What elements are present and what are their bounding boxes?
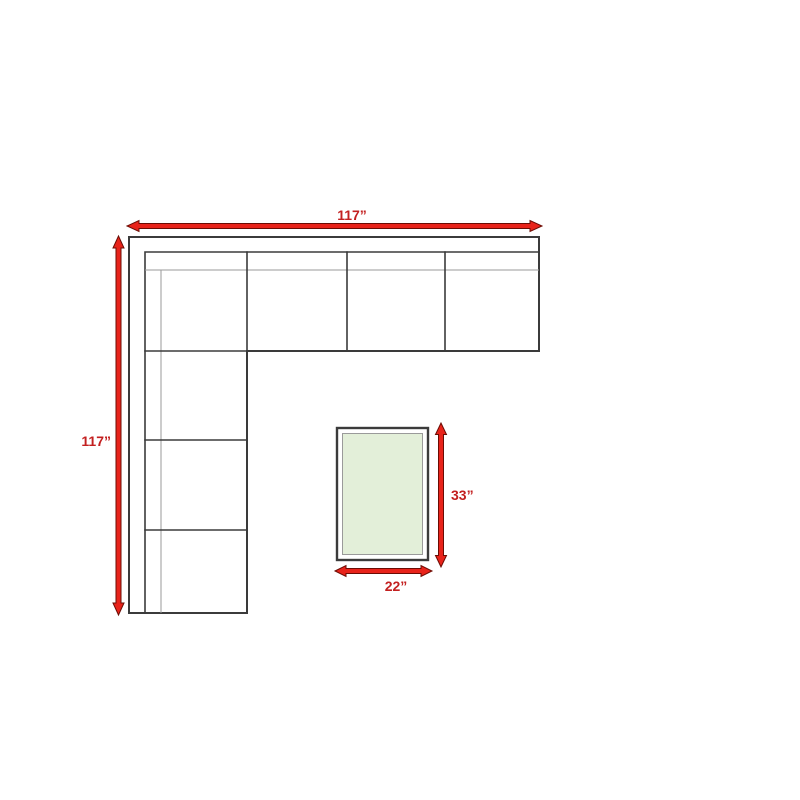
table-width-arrow [335, 566, 432, 577]
diagram-canvas: 117” 117” 33” 22” [0, 0, 800, 800]
sofa-width-arrow [127, 221, 542, 232]
sofa-depth-label: 117” [81, 433, 111, 449]
table-length-label: 33” [451, 487, 474, 503]
sectional-sofa [129, 237, 539, 613]
dimension-diagram: 117” 117” 33” 22” [0, 0, 800, 800]
sofa-depth-arrow [113, 236, 124, 615]
table-top-surface [343, 434, 423, 555]
sofa-outer-shell [129, 237, 539, 613]
end-table [337, 428, 428, 560]
table-length-arrow [436, 423, 447, 567]
sofa-width-label: 117” [337, 207, 367, 223]
table-width-label: 22” [385, 578, 408, 594]
